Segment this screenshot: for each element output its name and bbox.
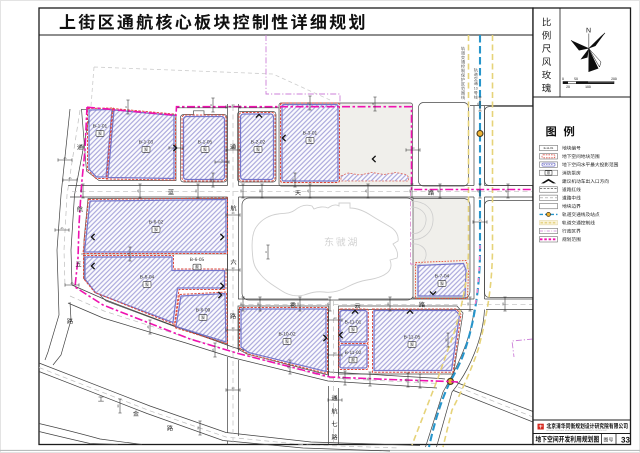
svg-text:B-11-02: B-11-02 <box>345 350 362 356</box>
svg-text:B-11-05: B-11-05 <box>404 335 421 341</box>
svg-text:20: 20 <box>566 85 570 89</box>
svg-text:B-7-04: B-7-04 <box>435 274 450 280</box>
svg-text:B-11-01: B-11-01 <box>345 320 362 326</box>
svg-text:0: 0 <box>562 77 564 81</box>
svg-text:50: 50 <box>574 77 578 81</box>
svg-text:B-6-02: B-6-02 <box>149 220 164 226</box>
svg-text:B-10-02: B-10-02 <box>278 332 295 338</box>
svg-text:B-3-01: B-3-01 <box>303 131 318 137</box>
svg-text:200: 200 <box>611 77 617 81</box>
svg-text:N: N <box>586 28 591 35</box>
svg-text:B-6-05: B-6-05 <box>190 257 205 263</box>
svg-text:BEIJING TSINGHUA TONGHENG URBA: BEIJING TSINGHUA TONGHENG URBAN PLANNING… <box>547 429 608 432</box>
svg-text:B-2-02: B-2-02 <box>251 140 266 146</box>
svg-text:33: 33 <box>621 435 630 444</box>
svg-text:B-11-01: B-11-01 <box>544 146 554 150</box>
svg-text:10: 10 <box>474 86 478 90</box>
svg-text:B-1-05: B-1-05 <box>198 140 213 146</box>
svg-text:B-1-01: B-1-01 <box>93 124 108 130</box>
svg-text:B-1-03: B-1-03 <box>139 140 154 146</box>
svg-text:100: 100 <box>585 85 591 89</box>
svg-text:B-6-09: B-6-09 <box>196 308 211 314</box>
svg-text:B-6-04: B-6-04 <box>140 275 155 281</box>
